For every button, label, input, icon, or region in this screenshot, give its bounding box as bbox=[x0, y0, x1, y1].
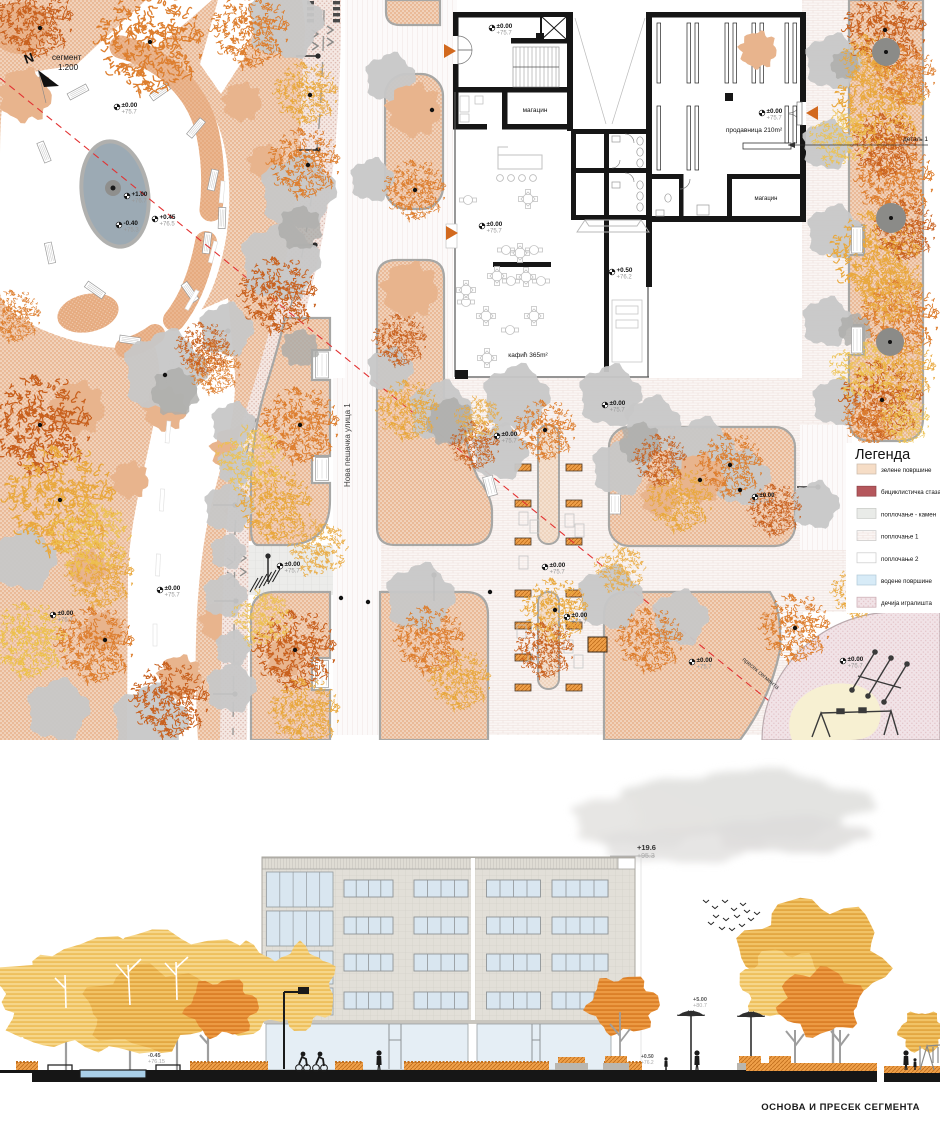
svg-text:+75.7: +75.7 bbox=[760, 499, 774, 505]
svg-text:ОСНОВА И ПРЕСЕК СЕГМЕНТА: ОСНОВА И ПРЕСЕК СЕГМЕНТА bbox=[761, 1102, 920, 1113]
svg-text:±0.00: ±0.00 bbox=[122, 102, 138, 109]
svg-text:±0.00: ±0.00 bbox=[487, 221, 503, 228]
svg-text:+76.15: +76.15 bbox=[148, 1059, 165, 1065]
svg-text:бициклистичка стаза: бициклистичка стаза bbox=[881, 489, 940, 496]
svg-text:+75.7: +75.7 bbox=[610, 407, 626, 413]
svg-text:+76.7: +76.7 bbox=[132, 198, 148, 204]
svg-text:поплочање 1: поплочање 1 bbox=[881, 534, 919, 541]
svg-text:+0.50: +0.50 bbox=[617, 267, 633, 274]
svg-text:продавница 210m²: продавница 210m² bbox=[726, 127, 783, 134]
svg-text:+75.7: +75.7 bbox=[165, 592, 181, 598]
svg-text:+75.3: +75.3 bbox=[124, 227, 140, 233]
svg-text:+75.7: +75.7 bbox=[502, 438, 518, 444]
svg-text:зелене површине: зелене површине bbox=[881, 467, 932, 474]
svg-text:+75.7: +75.7 bbox=[550, 569, 566, 575]
svg-text:±0.00: ±0.00 bbox=[697, 657, 713, 664]
svg-text:магацин: магацин bbox=[755, 196, 778, 202]
svg-text:+75.7: +75.7 bbox=[487, 228, 503, 234]
svg-text:+75.7: +75.7 bbox=[848, 663, 864, 669]
svg-text:+75.7: +75.7 bbox=[122, 109, 138, 115]
svg-text:±0.00: ±0.00 bbox=[497, 23, 513, 30]
svg-text:дечија игралишта: дечија игралишта bbox=[881, 600, 932, 607]
svg-text:+76.5: +76.5 bbox=[160, 221, 176, 227]
svg-text:поплочање 2: поплочање 2 bbox=[881, 556, 919, 563]
svg-text:±0.00: ±0.00 bbox=[767, 108, 783, 115]
svg-text:+75.7: +75.7 bbox=[697, 664, 713, 670]
svg-text:+19.6: +19.6 bbox=[637, 843, 656, 852]
svg-text:+75.7: +75.7 bbox=[767, 115, 783, 121]
svg-text:кафић 365m²: кафић 365m² bbox=[508, 351, 548, 359]
svg-text:+75.7: +75.7 bbox=[572, 619, 588, 625]
svg-text:-0.40: -0.40 bbox=[124, 220, 139, 227]
svg-text:+75.7: +75.7 bbox=[58, 617, 74, 623]
svg-text:±0.00: ±0.00 bbox=[610, 400, 626, 407]
svg-text:Легенда: Легенда bbox=[855, 447, 911, 463]
svg-text:±0.00: ±0.00 bbox=[285, 561, 301, 568]
svg-text:+76.2: +76.2 bbox=[617, 274, 633, 280]
svg-text:детаљ 1: детаљ 1 bbox=[903, 136, 928, 143]
svg-text:+80.7: +80.7 bbox=[693, 1003, 707, 1009]
svg-text:+95.3: +95.3 bbox=[637, 853, 655, 860]
svg-text:±0.00: ±0.00 bbox=[572, 612, 588, 619]
svg-text:Нова пешачка улица 1: Нова пешачка улица 1 bbox=[343, 403, 352, 487]
svg-text:±0.00: ±0.00 bbox=[502, 431, 518, 438]
svg-text:±0.00: ±0.00 bbox=[848, 656, 864, 663]
svg-text:+75.7: +75.7 bbox=[497, 30, 513, 36]
svg-text:+76.2: +76.2 bbox=[641, 1060, 654, 1066]
svg-text:магацин: магацин bbox=[523, 107, 548, 114]
svg-text:сегмент: сегмент bbox=[52, 53, 82, 62]
svg-text:поплочање - камен: поплочање - камен bbox=[881, 511, 936, 518]
svg-text:±0.00: ±0.00 bbox=[58, 610, 74, 617]
svg-text:1:200: 1:200 bbox=[58, 63, 79, 72]
svg-text:+1.00: +1.00 bbox=[132, 191, 148, 198]
svg-text:+0.45: +0.45 bbox=[160, 214, 176, 221]
svg-text:±0.00: ±0.00 bbox=[165, 585, 181, 592]
svg-text:±0.00: ±0.00 bbox=[550, 562, 566, 569]
svg-text:водене површине: водене површине bbox=[881, 578, 933, 585]
svg-text:+75.7: +75.7 bbox=[285, 568, 301, 574]
